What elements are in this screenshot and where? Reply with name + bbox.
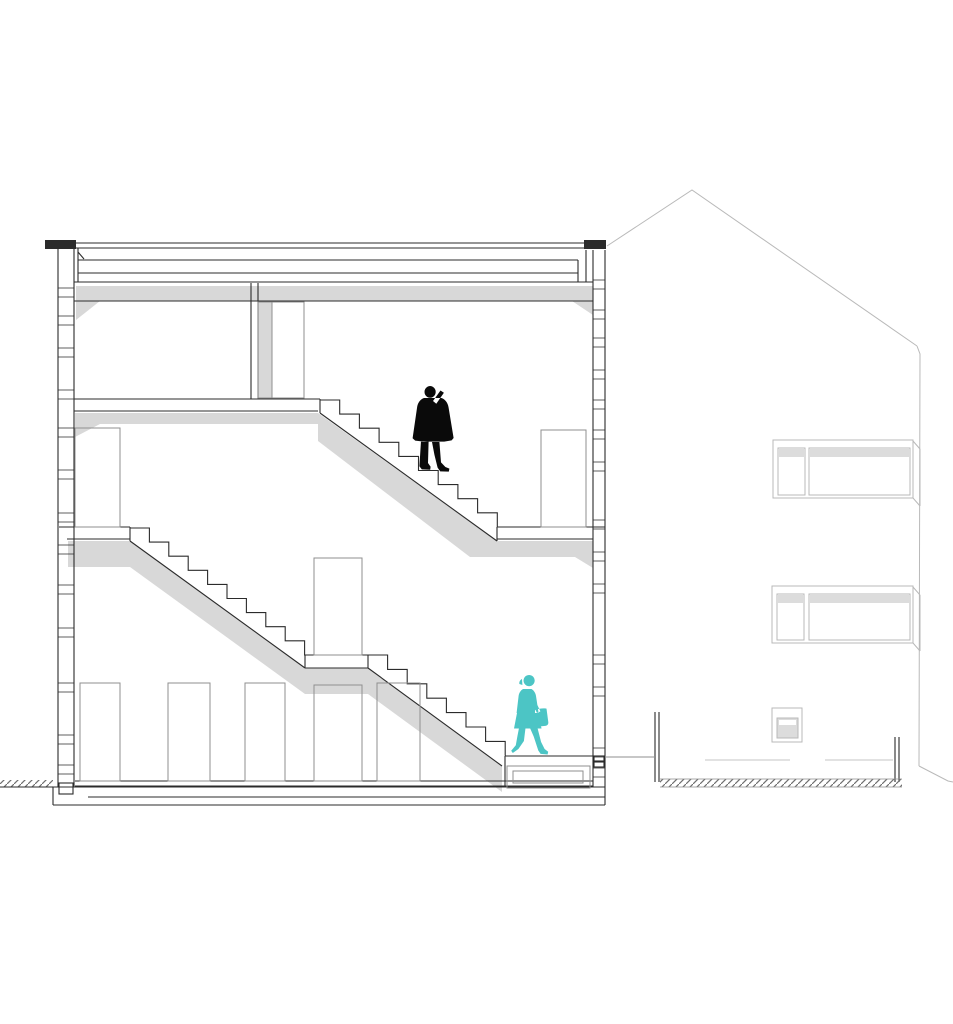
drawing-canvas <box>0 0 953 1024</box>
ground-hatch-left <box>0 780 53 787</box>
window-glass-band <box>810 595 909 603</box>
section-drawing <box>0 0 953 1024</box>
right-parapet-cap <box>584 240 606 249</box>
ground-hatch-right <box>660 779 902 787</box>
left-parapet-cap <box>45 240 76 249</box>
background <box>0 0 953 1024</box>
window-glass-band <box>779 449 804 457</box>
top-floor-door-leaf <box>258 302 272 398</box>
window-glass-band <box>778 595 803 603</box>
window-glass-band <box>810 449 909 457</box>
